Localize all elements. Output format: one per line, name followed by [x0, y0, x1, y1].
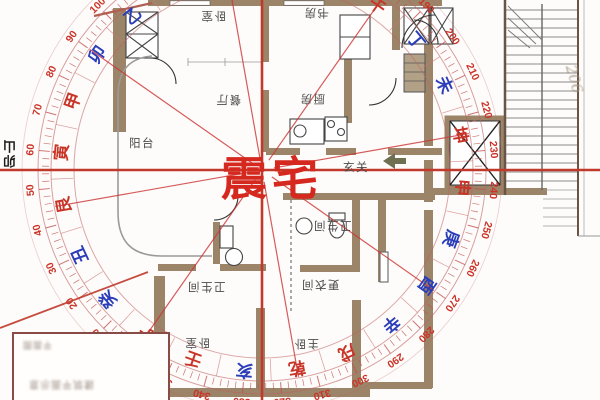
balcony-outline — [118, 56, 212, 256]
compass-degree-label: 40 — [30, 223, 45, 238]
degree-tick — [66, 267, 72, 270]
degree-tick — [441, 286, 447, 290]
degree-tick — [46, 128, 53, 129]
degree-tick — [39, 150, 50, 151]
degree-tick — [372, 353, 376, 359]
degree-tick — [213, 378, 215, 385]
degree-tick — [455, 260, 465, 265]
degree-tick — [228, 380, 229, 387]
degree-tick — [458, 253, 464, 256]
degree-tick — [86, 38, 92, 42]
degree-tick — [345, 366, 348, 372]
entry-arrow-icon — [383, 153, 406, 169]
compass-degree-label: 240 — [487, 181, 500, 200]
compass-mountain-label: 未 — [431, 72, 458, 97]
room-label: 主卧 — [293, 336, 319, 352]
degree-tick — [73, 57, 79, 61]
degree-tick — [59, 75, 69, 80]
degree-tick — [57, 91, 64, 94]
compass-mountain-label: 坤 — [448, 125, 472, 145]
room-label: 餐厅 — [215, 92, 241, 108]
degree-tick — [468, 225, 479, 228]
degree-tick — [390, 340, 394, 346]
legend-caption-line1: 平面图 — [22, 339, 52, 352]
compass-mountain-label: 甲 — [61, 90, 86, 113]
degree-tick — [91, 32, 96, 36]
staircase-icon — [505, 0, 600, 236]
sector-separator — [442, 107, 463, 114]
compass-mountain-label: 庚 — [438, 227, 464, 250]
degree-tick — [96, 26, 101, 31]
house-type-title: 震宅 — [221, 143, 323, 209]
compass-degree-label: 60 — [24, 143, 37, 156]
fengshui-floorplan-image: 0102030405060708090100110120130140150160… — [0, 0, 600, 400]
sector-separator — [447, 211, 468, 216]
compass-degree-label: 230 — [487, 141, 500, 160]
kitchen-fixtures — [290, 15, 370, 144]
room-label: 玄关 — [343, 159, 369, 175]
degree-tick — [317, 376, 320, 387]
degree-tick — [70, 63, 76, 66]
degree-tick — [44, 143, 51, 144]
room-label: 卧室 — [200, 8, 226, 24]
degree-tick — [463, 239, 470, 241]
degree-tick — [445, 57, 451, 61]
degree-tick — [303, 379, 304, 386]
degree-tick — [310, 378, 312, 385]
degree-tick — [198, 374, 200, 381]
degree-tick — [295, 380, 296, 387]
degree-tick — [44, 196, 51, 197]
sector-separator — [364, 329, 376, 348]
degree-tick — [183, 369, 186, 376]
degree-tick — [59, 260, 69, 265]
compass-mountain-label: 癸 — [94, 285, 122, 313]
sector-separator — [75, 73, 95, 83]
degree-tick — [220, 379, 221, 386]
degree-tick — [472, 203, 479, 204]
degree-tick — [48, 121, 55, 123]
degree-tick — [48, 218, 55, 220]
degree-tick — [466, 232, 473, 234]
degree-tick — [448, 63, 454, 66]
degree-tick — [54, 98, 61, 100]
sector-separator — [119, 309, 134, 325]
degree-tick — [39, 189, 50, 190]
degree-tick — [77, 50, 83, 54]
legend-caption-line2: 建筑平面示意 — [28, 378, 94, 393]
degree-tick — [124, 0, 128, 4]
degree-tick — [458, 84, 464, 87]
sector-separator — [84, 272, 103, 284]
degree-tick — [455, 75, 465, 80]
compass-mountain-label: 申 — [451, 178, 473, 197]
degree-tick — [73, 280, 79, 284]
room-label: 卧室 — [184, 335, 210, 351]
degree-tick — [190, 371, 192, 378]
degree-tick — [436, 292, 445, 298]
sitting-mountain-label: 卯山 — [1, 138, 20, 168]
degree-tick — [66, 70, 72, 73]
dimension-line — [188, 58, 262, 66]
degree-tick — [104, 321, 112, 329]
compass-degree-label: 210 — [463, 61, 481, 82]
room-label: 书房 — [303, 5, 329, 21]
degree-tick — [396, 336, 400, 341]
degree-tick — [96, 310, 101, 315]
degree-tick — [338, 369, 341, 376]
sector-separator — [319, 350, 326, 371]
degree-tick — [418, 315, 423, 320]
room-label: 卫生间 — [313, 218, 352, 234]
room-label: 卫生间 — [187, 279, 226, 295]
degree-tick — [461, 91, 468, 94]
degree-tick — [324, 374, 326, 381]
degree-tick — [45, 136, 52, 137]
degree-tick — [176, 366, 179, 372]
degree-tick — [86, 298, 92, 302]
degree-tick — [384, 344, 390, 353]
compass-degree-label: 250 — [478, 220, 494, 240]
room-label: 更衣间 — [301, 277, 340, 293]
degree-tick — [473, 196, 480, 197]
compass-degree-label: 70 — [30, 103, 45, 118]
sector-separator — [401, 298, 417, 313]
degree-tick — [46, 112, 57, 115]
compass-degree-label: 260 — [463, 258, 481, 279]
degree-tick — [54, 239, 61, 241]
sector-separator — [270, 359, 271, 381]
compass-mountain-label: 亥 — [235, 359, 254, 381]
degree-tick — [57, 246, 64, 249]
compass-mountain-label: 艮 — [53, 194, 76, 215]
degree-tick — [91, 304, 96, 308]
degree-tick — [52, 106, 59, 108]
degree-tick — [112, 326, 117, 331]
plan-walls — [113, 0, 547, 397]
sector-separator — [216, 355, 221, 376]
degree-tick — [70, 273, 76, 276]
compass-degree-label: 290 — [384, 350, 405, 370]
direction-line — [226, 0, 260, 158]
degree-tick — [413, 321, 421, 329]
degree-tick — [77, 286, 83, 290]
degree-tick — [204, 376, 207, 387]
sector-separator — [51, 178, 73, 179]
degree-tick — [452, 267, 458, 270]
legend-box: 平面图 建筑平面示意 — [12, 332, 170, 400]
degree-tick — [59, 84, 65, 87]
degree-tick — [59, 253, 65, 256]
degree-tick — [468, 112, 479, 115]
degree-tick — [46, 211, 53, 212]
sector-separator — [56, 124, 77, 129]
degree-tick — [101, 20, 106, 25]
compass-mountain-label: 丑 — [68, 243, 93, 267]
degree-tick — [452, 70, 458, 73]
degree-tick — [235, 381, 236, 388]
compass-degree-label: 50 — [24, 184, 37, 197]
room-label: 厨房 — [299, 91, 325, 107]
degree-tick — [402, 331, 407, 336]
degree-tick — [466, 106, 473, 108]
degree-tick — [445, 280, 451, 284]
sector-separator — [61, 227, 82, 234]
degree-tick — [46, 225, 57, 228]
compass-degree-label: 270 — [442, 293, 462, 314]
degree-tick — [378, 349, 382, 355]
room-label: 阳台 — [129, 135, 155, 151]
degree-tick — [463, 98, 470, 100]
degree-tick — [101, 315, 106, 320]
degree-tick — [288, 381, 289, 388]
degree-tick — [365, 356, 368, 362]
degree-tick — [331, 371, 333, 378]
degree-tick — [407, 326, 412, 331]
degree-tick — [45, 203, 52, 204]
degree-tick — [471, 211, 478, 212]
compass-mountain-label: 寅 — [51, 143, 73, 162]
degree-tick — [79, 42, 88, 48]
compass-mountain-label: 乾 — [287, 356, 307, 380]
degree-tick — [470, 218, 477, 220]
degree-tick — [461, 246, 468, 249]
degree-tick — [448, 273, 454, 276]
degree-tick — [441, 50, 447, 54]
degree-tick — [52, 232, 59, 234]
